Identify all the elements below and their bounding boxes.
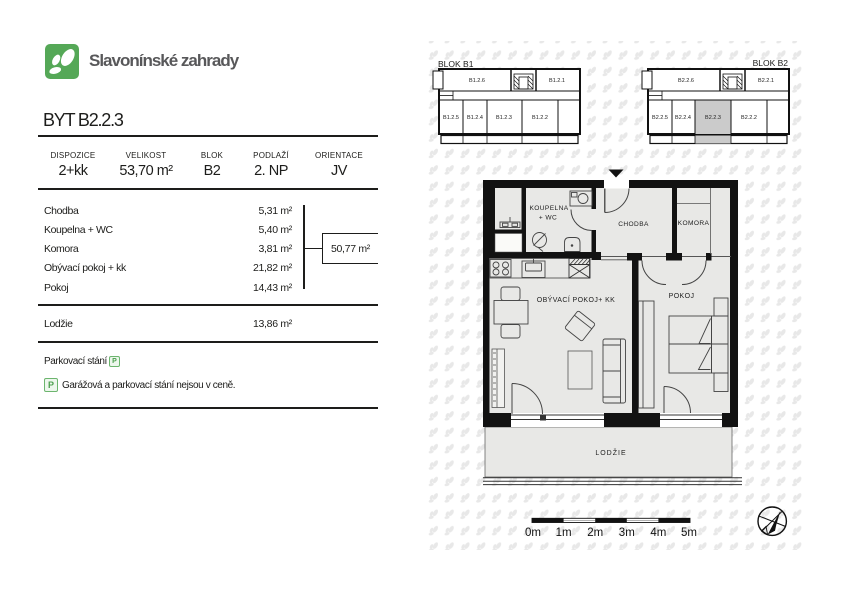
svg-text:BLOK B2: BLOK B2: [753, 58, 789, 68]
svg-text:1m: 1m: [556, 527, 572, 539]
svg-text:LODŽIE: LODŽIE: [595, 448, 626, 457]
svg-text:0m: 0m: [525, 527, 541, 539]
svg-text:POKOJ: POKOJ: [669, 293, 695, 300]
svg-text:B1.2.1: B1.2.1: [549, 78, 565, 84]
svg-text:B1.2.4: B1.2.4: [467, 115, 483, 121]
svg-text:KOMORA: KOMORA: [678, 220, 710, 227]
svg-text:B1.2.2: B1.2.2: [532, 115, 548, 121]
svg-text:4m: 4m: [650, 527, 666, 539]
svg-text:B2.2.3: B2.2.3: [705, 115, 721, 121]
svg-text:2m: 2m: [587, 527, 603, 539]
svg-text:5m: 5m: [681, 527, 697, 539]
svg-text:B1.2.5: B1.2.5: [443, 115, 459, 121]
svg-text:CHODBA: CHODBA: [618, 221, 649, 228]
svg-text:OBÝVACÍ POKOJ+ KK: OBÝVACÍ POKOJ+ KK: [537, 295, 615, 304]
svg-text:B2.2.6: B2.2.6: [678, 78, 694, 84]
svg-text:3m: 3m: [619, 527, 635, 539]
svg-text:B2.2.2: B2.2.2: [741, 115, 757, 121]
svg-text:KOUPELNA: KOUPELNA: [529, 205, 568, 212]
svg-text:B2.2.1: B2.2.1: [758, 78, 774, 84]
svg-text:BLOK B1: BLOK B1: [438, 59, 474, 69]
svg-text:B2.2.4: B2.2.4: [675, 115, 691, 121]
svg-text:B1.2.3: B1.2.3: [496, 115, 512, 121]
svg-text:B1.2.6: B1.2.6: [469, 78, 485, 84]
svg-text:+ WC: + WC: [539, 215, 557, 222]
svg-text:B2.2.5: B2.2.5: [652, 115, 668, 121]
